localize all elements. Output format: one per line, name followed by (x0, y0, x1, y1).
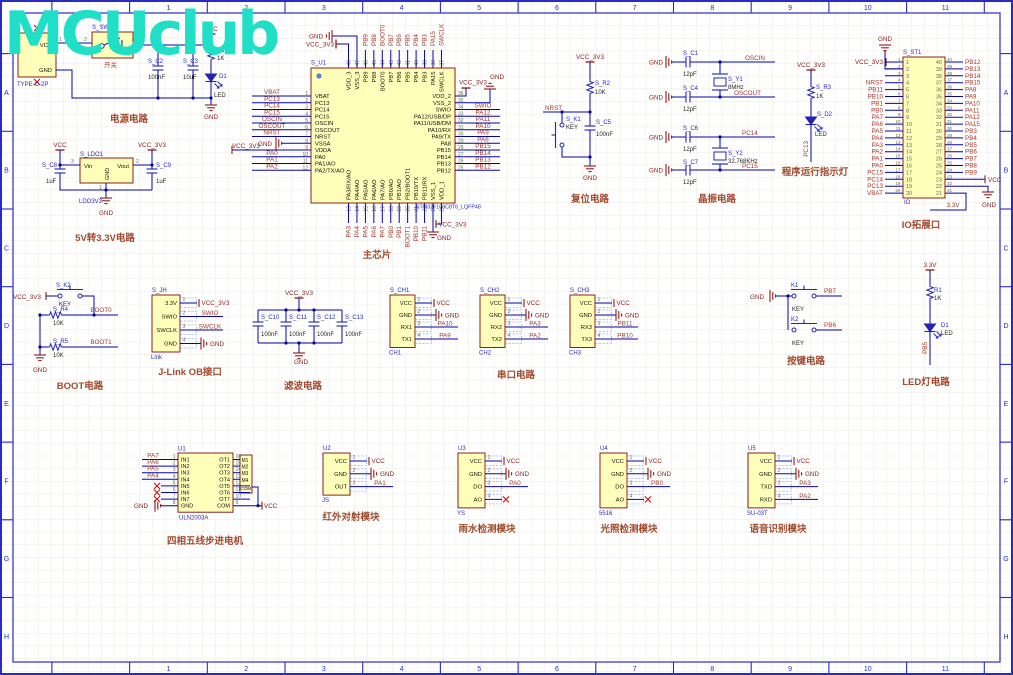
pin-number[interactable]: 43 (389, 60, 395, 66)
power-label[interactable]: GND (649, 168, 663, 175)
pin-name[interactable]: OSCIN (315, 121, 333, 127)
pin-name[interactable]: TX2 (491, 337, 502, 343)
sheet-zone-label[interactable]: F (1004, 478, 1008, 485)
net-label[interactable]: PB6 (396, 34, 403, 46)
pin-name[interactable]: RX2 (491, 325, 502, 331)
pin-name[interactable]: VDDA (315, 148, 331, 154)
designator[interactable]: S_C11 (289, 315, 308, 321)
component-value[interactable]: 12pF (683, 180, 697, 186)
pin-name[interactable]: PC13 (315, 101, 330, 107)
power-label[interactable]: GND (878, 36, 892, 43)
power-label[interactable]: VCC (988, 177, 1002, 184)
pin-name[interactable]: PB11/RX (423, 176, 429, 200)
sheet-zone-label[interactable]: 8 (710, 666, 714, 673)
net-label[interactable]: PB12 (475, 163, 491, 170)
pin-number[interactable]: 46 (363, 60, 369, 66)
pin-number[interactable]: 38 (431, 60, 437, 66)
net-label[interactable]: OSCIN (745, 55, 765, 62)
designator[interactable]: S_C4 (683, 86, 699, 92)
section-title[interactable]: 语音识别模块 (749, 523, 807, 535)
component-value[interactable]: 32.768KHz (728, 159, 758, 165)
pin-number[interactable]: 3 (508, 321, 511, 327)
component-value[interactable]: 100nF (261, 332, 278, 338)
pin-number[interactable]: 7 (898, 98, 901, 103)
designator[interactable]: S_C8 (42, 163, 58, 169)
sheet-zone-label[interactable]: H (4, 634, 9, 641)
designator[interactable]: IO (904, 200, 911, 206)
designator[interactable]: S_CH3 (570, 288, 590, 294)
pin-name[interactable]: GND (399, 313, 412, 319)
pin-number[interactable]: 2 (778, 468, 781, 474)
section-title[interactable]: 四相五线步进电机 (167, 535, 244, 547)
component-value[interactable]: KEY (566, 125, 578, 131)
pin-number[interactable]: 11 (896, 126, 901, 131)
pin-number[interactable]: 18 (895, 174, 901, 179)
pin-name[interactable]: GND (579, 313, 592, 319)
component-value[interactable]: 100nF (148, 75, 165, 81)
pin-name[interactable]: GND (759, 472, 772, 478)
pin-number[interactable]: 41 (406, 60, 412, 66)
designator[interactable]: S_C1 (683, 51, 699, 57)
pin-number[interactable]: 3 (488, 481, 491, 487)
component-value[interactable]: 12pF (683, 72, 697, 78)
designator[interactable]: D1 (219, 74, 227, 80)
pin-number[interactable]: 2 (183, 311, 186, 317)
power-label[interactable]: GND (294, 359, 308, 366)
component-value[interactable]: 100nF (317, 332, 334, 338)
power-label[interactable]: VCC (372, 458, 386, 465)
pin-number[interactable]: 1 (488, 455, 491, 461)
pin-name[interactable]: OT1 (219, 458, 230, 464)
pin-number[interactable]: 32 (936, 115, 942, 121)
pin-number[interactable]: 21 (947, 188, 953, 193)
pin-number[interactable]: 37 (936, 81, 942, 87)
pin-number[interactable]: 4 (183, 338, 186, 344)
net-label[interactable]: PA3 (529, 321, 541, 328)
pin-number[interactable]: 3 (898, 71, 901, 76)
power-label[interactable]: GND (583, 175, 597, 182)
pin-name[interactable]: Vout (117, 164, 129, 170)
net-label[interactable]: PB7 (824, 288, 836, 295)
power-label[interactable]: GND (258, 141, 272, 148)
sheet-zone-label[interactable]: A (1004, 90, 1009, 97)
net-label[interactable]: PB4 (413, 34, 420, 46)
designator[interactable]: SU-03T (747, 511, 768, 517)
designator[interactable]: Link (151, 355, 163, 361)
pin-name[interactable]: TXD (760, 485, 772, 491)
pin-number[interactable]: 37 (439, 60, 445, 66)
pin-number[interactable]: 4 (598, 333, 601, 339)
net-label[interactable]: PA5 (362, 226, 369, 238)
pin-name[interactable]: PB7 (389, 72, 395, 83)
pin-name[interactable]: VSSA (315, 141, 331, 147)
pin-name[interactable]: GND (105, 168, 111, 180)
pin-number[interactable]: 9 (236, 500, 239, 506)
sheet-zone-label[interactable]: 6 (555, 666, 559, 673)
pin-name[interactable]: OT5 (219, 484, 230, 490)
power-label[interactable]: GND (625, 312, 639, 319)
pin-name[interactable]: PA0 (315, 155, 326, 161)
pin-name[interactable]: PA4/AO (355, 179, 361, 200)
designator[interactable]: U1 (178, 447, 186, 453)
net-label[interactable]: PB5 (405, 34, 412, 46)
designator[interactable]: S_R4 (53, 307, 69, 313)
pin-number[interactable]: 1 (418, 297, 421, 303)
pin-number[interactable]: 27 (936, 150, 942, 156)
section-title[interactable]: 光照检测模块 (599, 523, 658, 535)
net-label[interactable]: PB9 (362, 34, 369, 46)
pin-number[interactable]: 2 (136, 159, 139, 165)
power-label[interactable]: VCC_3V3 (438, 222, 466, 229)
net-label[interactable]: BOOT1 (405, 226, 412, 248)
designator[interactable]: S_R2 (595, 81, 611, 87)
pin-name[interactable]: SWCLK (439, 71, 445, 92)
sheet-zone-label[interactable]: D (1003, 323, 1008, 330)
pin-name[interactable]: OT4 (219, 477, 230, 483)
pin-number[interactable]: 30 (936, 129, 942, 135)
pin-number[interactable]: 17 (895, 167, 901, 172)
pin-number[interactable]: 1 (778, 455, 781, 461)
pin-name[interactable]: GND (181, 504, 193, 510)
pin-name[interactable]: VCC (470, 459, 482, 465)
pin-number[interactable]: 3 (183, 324, 186, 330)
section-title[interactable]: 复位电路 (570, 193, 610, 205)
pin-number[interactable]: 38 (936, 74, 942, 80)
pin-name[interactable]: VCC (490, 301, 502, 307)
component-value[interactable]: KEY (792, 341, 804, 347)
pin-number[interactable]: 12 (895, 133, 901, 138)
net-label[interactable]: PA4 (354, 226, 361, 238)
net-label[interactable]: PA0 (509, 480, 521, 487)
pin-number[interactable]: 25 (936, 164, 942, 170)
pin-number[interactable]: 31 (947, 119, 953, 124)
pin-number[interactable]: 34 (947, 98, 953, 103)
pin-number[interactable]: 1 (99, 185, 102, 191)
designator[interactable]: S_R3 (816, 85, 832, 91)
pin-number[interactable]: 3 (598, 321, 601, 327)
designator[interactable]: S_CH1 (390, 288, 410, 294)
power-label[interactable]: VCC_3V3 (285, 290, 313, 297)
pin-name[interactable]: OUT (335, 485, 348, 491)
pin-name[interactable]: PA5/AO (363, 179, 369, 200)
power-label[interactable]: GND (649, 60, 663, 67)
pin-number[interactable]: 44 (380, 60, 386, 66)
net-label[interactable]: BOOT1 (90, 339, 112, 346)
pin-number[interactable]: 4 (906, 81, 909, 87)
pin-name[interactable]: PB2/BOOT1 (406, 168, 412, 200)
pin-number[interactable]: 32 (947, 112, 953, 117)
net-label[interactable]: SWIO (202, 310, 219, 317)
designator[interactable]: S_C9 (156, 163, 172, 169)
sheet-zone-label[interactable]: B (4, 168, 9, 175)
pin-name[interactable]: M3 (242, 471, 249, 477)
power-label[interactable]: VCC (797, 458, 811, 465)
pin-number[interactable]: 5 (906, 88, 909, 94)
pin-name[interactable]: PB1/AO (397, 179, 403, 200)
net-label[interactable]: PB11 (618, 321, 633, 328)
net-label[interactable]: SWCLK (438, 23, 445, 46)
pin-number[interactable]: 48 (347, 60, 353, 66)
pin-name[interactable]: RX3 (581, 325, 592, 331)
pin-name[interactable]: VCC (612, 459, 624, 465)
power-label[interactable]: VCC_3V3 (202, 300, 230, 307)
designator[interactable]: T1 (22, 27, 30, 33)
pin-name[interactable]: TX1 (401, 337, 412, 343)
power-label[interactable]: VCC (617, 300, 631, 307)
pin-name[interactable]: OT2 (219, 464, 230, 470)
power-label[interactable]: 3.3V (924, 262, 938, 269)
pin-name[interactable]: PB3 (423, 72, 429, 83)
power-label[interactable]: VCC (437, 300, 451, 307)
pin-name[interactable]: COM (241, 486, 252, 491)
designator[interactable]: S_C5 (596, 120, 612, 126)
designator[interactable]: 5516 (599, 511, 613, 517)
power-label[interactable]: GND (657, 471, 671, 478)
pin-name[interactable]: IN4 (181, 477, 190, 483)
section-title[interactable]: 5V转3.3V电路 (75, 232, 135, 244)
pin-name[interactable]: PB6 (397, 72, 403, 83)
sheet-zone-label[interactable]: 5 (477, 666, 481, 673)
sheet-zone-label[interactable]: 10 (864, 666, 872, 673)
pin-number[interactable]: 28 (936, 143, 942, 149)
pin-number[interactable]: 16 (372, 206, 378, 212)
pin-name[interactable]: SWIO (162, 315, 178, 321)
pin-number[interactable]: 42 (397, 60, 403, 66)
pin-name[interactable]: PB4 (414, 71, 420, 83)
designator[interactable]: S_R5 (53, 339, 69, 345)
pin-name[interactable]: PB9 (363, 72, 369, 83)
power-label[interactable]: VCC_3V3 (138, 142, 166, 149)
designator[interactable]: CH1 (389, 351, 402, 357)
designator[interactable]: S_LDO1 (80, 152, 104, 158)
pin-number[interactable]: 4 (778, 493, 781, 499)
pin-name[interactable]: OT3 (219, 471, 230, 477)
sheet-zone-label[interactable]: E (4, 401, 9, 408)
pin-name[interactable]: PA15 (431, 72, 437, 86)
pin-number[interactable]: 2 (630, 468, 633, 474)
net-label[interactable]: VBAT (867, 190, 883, 197)
power-label[interactable]: GND (134, 503, 148, 510)
pin-number[interactable]: 22 (947, 181, 953, 186)
sheet-zone-label[interactable]: 4 (400, 5, 404, 12)
pin-name[interactable]: PB13 (437, 162, 451, 168)
net-label[interactable]: PB10 (413, 226, 420, 242)
pin-number[interactable]: 19 (397, 206, 403, 212)
pin-number[interactable]: 2 (353, 468, 356, 474)
pin-name[interactable]: PA6/AO (372, 179, 378, 200)
section-title[interactable]: 电源电路 (110, 113, 149, 125)
pin-number[interactable]: 19 (906, 184, 912, 190)
section-title[interactable]: LED灯电路 (902, 376, 950, 388)
pin-name[interactable]: GND (611, 472, 624, 478)
designator[interactable]: S_C13 (345, 315, 364, 321)
pin-number[interactable]: 28 (947, 140, 953, 145)
pin-number[interactable]: 29 (936, 136, 942, 142)
pin-name[interactable]: VCC (580, 301, 592, 307)
pin-number[interactable]: 24 (947, 167, 953, 172)
pin-number[interactable]: 8 (906, 108, 909, 114)
pin-name[interactable]: NRST (315, 135, 331, 141)
pin-number[interactable]: 20 (406, 206, 412, 212)
pin-number[interactable]: 1 (353, 455, 356, 461)
pin-name[interactable]: GND (334, 472, 347, 478)
pin-number[interactable]: 8 (898, 105, 901, 110)
pin-name[interactable]: M4 (242, 478, 249, 484)
pin-number[interactable]: 36 (947, 85, 953, 90)
pin-number[interactable]: 18 (389, 206, 395, 212)
power-label[interactable]: GND (750, 294, 764, 301)
pin-number[interactable]: 40 (947, 57, 953, 62)
pin-name[interactable]: PA11/USB/DM (414, 121, 452, 127)
net-label[interactable]: PB0 (388, 226, 395, 238)
pin-number[interactable]: 3 (353, 481, 356, 487)
pin-number[interactable]: 12 (906, 136, 912, 142)
sheet-zone-label[interactable]: 11 (942, 5, 949, 12)
power-label[interactable]: VCC (53, 142, 67, 149)
pin-name[interactable]: PA8 (440, 141, 451, 147)
pin-name[interactable]: VDD_1 (439, 181, 445, 200)
pin-number[interactable]: 1 (508, 297, 511, 303)
power-label[interactable]: VCC (204, 26, 218, 33)
pin-number[interactable]: 39 (936, 67, 942, 73)
pin-name[interactable]: VCC (335, 459, 347, 465)
net-label[interactable]: PB3 (422, 34, 429, 46)
sheet-zone-label[interactable]: 8 (710, 5, 714, 12)
pin-name[interactable]: PA2/TX/AO (315, 168, 345, 174)
net-label[interactable]: PA3 (346, 226, 353, 238)
pin-number[interactable]: 23 (936, 177, 942, 183)
pin-number[interactable]: 7 (906, 101, 909, 107)
power-label[interactable]: GND (490, 74, 504, 81)
pin-number[interactable]: 2 (84, 37, 87, 43)
component-value[interactable]: 1K (217, 56, 224, 62)
pin-number[interactable]: 15 (363, 206, 369, 212)
designator[interactable]: U3 (458, 446, 466, 452)
pin-number[interactable]: 40 (414, 60, 420, 66)
pin-number[interactable]: 47 (355, 60, 361, 66)
pin-number[interactable]: 1 (59, 37, 62, 43)
pin-number[interactable]: 4 (898, 78, 901, 83)
pin-name[interactable]: VCC (40, 43, 52, 49)
net-label[interactable]: NRST (263, 130, 280, 137)
pin-number[interactable]: 1 (183, 297, 186, 303)
sheet-zone-label[interactable]: 7 (633, 5, 637, 12)
pin-number[interactable]: 26 (936, 157, 942, 163)
power-label[interactable]: GND (805, 471, 819, 478)
power-label[interactable]: VCC_3V3 (459, 80, 487, 87)
power-label[interactable]: VCC_3V3 (306, 42, 334, 49)
section-title[interactable]: 晶振电路 (698, 193, 737, 205)
pin-name[interactable]: IN2 (181, 464, 190, 470)
power-label[interactable]: VCC (264, 503, 278, 510)
section-title[interactable]: J-Link OB接口 (158, 366, 222, 378)
power-label[interactable]: VCC (507, 458, 521, 465)
pin-number[interactable]: 3 (630, 481, 633, 487)
designator[interactable]: S_SW1 (92, 25, 113, 31)
designator[interactable]: K1 (791, 283, 799, 289)
sheet-zone-label[interactable]: 2 (244, 666, 248, 673)
pin-name[interactable]: PB0/AO (389, 179, 395, 200)
pin-number[interactable]: 3 (778, 481, 781, 487)
designator[interactable]: YS (457, 511, 465, 517)
pin-number[interactable]: 4 (508, 333, 511, 339)
power-label[interactable]: GND (649, 95, 663, 102)
pin-number[interactable]: 13 (895, 140, 901, 145)
designator[interactable]: U2 (323, 446, 331, 452)
component-value[interactable]: LED (941, 331, 953, 337)
designator[interactable]: R1 (934, 288, 942, 294)
sheet-zone-label[interactable]: 7 (633, 666, 637, 673)
component-value[interactable]: 10K (53, 321, 64, 327)
pin-number[interactable]: 11 (906, 129, 912, 135)
designator[interactable]: S_C3 (183, 59, 199, 65)
net-label[interactable]: PC14 (742, 130, 758, 137)
pin-number[interactable]: 6 (898, 92, 901, 97)
pin-number[interactable]: 36 (936, 88, 942, 94)
pin-number[interactable]: 17 (380, 206, 386, 212)
net-label[interactable]: PB7 (388, 34, 395, 46)
net-label[interactable]: PB11 (422, 226, 429, 241)
component-value[interactable]: KEY (792, 307, 804, 313)
net-label[interactable]: PA6 (371, 226, 378, 238)
designator[interactable]: S_Y2 (728, 151, 743, 157)
pin-name[interactable]: RX1 (401, 325, 412, 331)
sheet-zone-label[interactable]: B (1004, 168, 1009, 175)
pin-number[interactable]: 15 (895, 154, 901, 159)
sheet-zone-label[interactable]: 1 (166, 5, 170, 12)
power-label[interactable]: GND (204, 114, 218, 121)
pin-name[interactable]: AO (474, 497, 483, 503)
pin-number[interactable]: 9 (906, 115, 909, 121)
component-value[interactable]: 10K (53, 353, 64, 359)
pin-name[interactable]: VSS_3 (355, 72, 361, 90)
designator[interactable]: CH3 (569, 351, 582, 357)
pin-number[interactable]: 25 (947, 161, 953, 166)
pin-number[interactable]: 33 (936, 108, 942, 114)
pin-name[interactable]: M2 (242, 465, 249, 471)
sheet-zone-label[interactable]: 3 (322, 5, 326, 12)
pin-number[interactable]: 22 (423, 206, 429, 212)
net-label[interactable]: PA4 (147, 472, 159, 479)
net-label[interactable]: 3.3V (947, 202, 961, 209)
pin-name[interactable]: IN1 (181, 458, 190, 464)
pin-number[interactable]: 45 (372, 60, 378, 66)
designator[interactable]: TYPE-C-2P (17, 82, 48, 88)
pin-name[interactable]: Vin (84, 164, 92, 170)
net-label[interactable]: PA15 (430, 31, 437, 46)
net-label[interactable]: PA9 (439, 333, 451, 340)
pin-number[interactable]: 1 (630, 455, 633, 461)
power-label[interactable]: GND (535, 312, 549, 319)
pin-name[interactable]: GND (489, 313, 502, 319)
designator[interactable]: R1 (217, 48, 225, 54)
pin-name[interactable]: SWCLK (156, 328, 177, 334)
component-value[interactable]: 1uF (156, 179, 167, 185)
power-label[interactable]: GND (649, 135, 663, 142)
pin-name[interactable]: PB14 (437, 155, 452, 161)
pin-number[interactable]: 4 (488, 493, 491, 499)
pin-number[interactable]: 23 (947, 174, 953, 179)
pin-number[interactable]: 20 (895, 188, 901, 193)
sheet-zone-label[interactable]: 3 (322, 666, 326, 673)
section-title[interactable]: 按键电路 (787, 355, 826, 367)
sheet-zone-label[interactable]: 5 (477, 5, 481, 12)
power-label[interactable]: GND (210, 341, 224, 348)
pin-name[interactable]: COM (217, 504, 230, 510)
net-label[interactable]: PB10 (617, 333, 633, 340)
pin-number[interactable]: 9 (898, 112, 901, 117)
pin-number[interactable]: 6 (906, 95, 909, 101)
